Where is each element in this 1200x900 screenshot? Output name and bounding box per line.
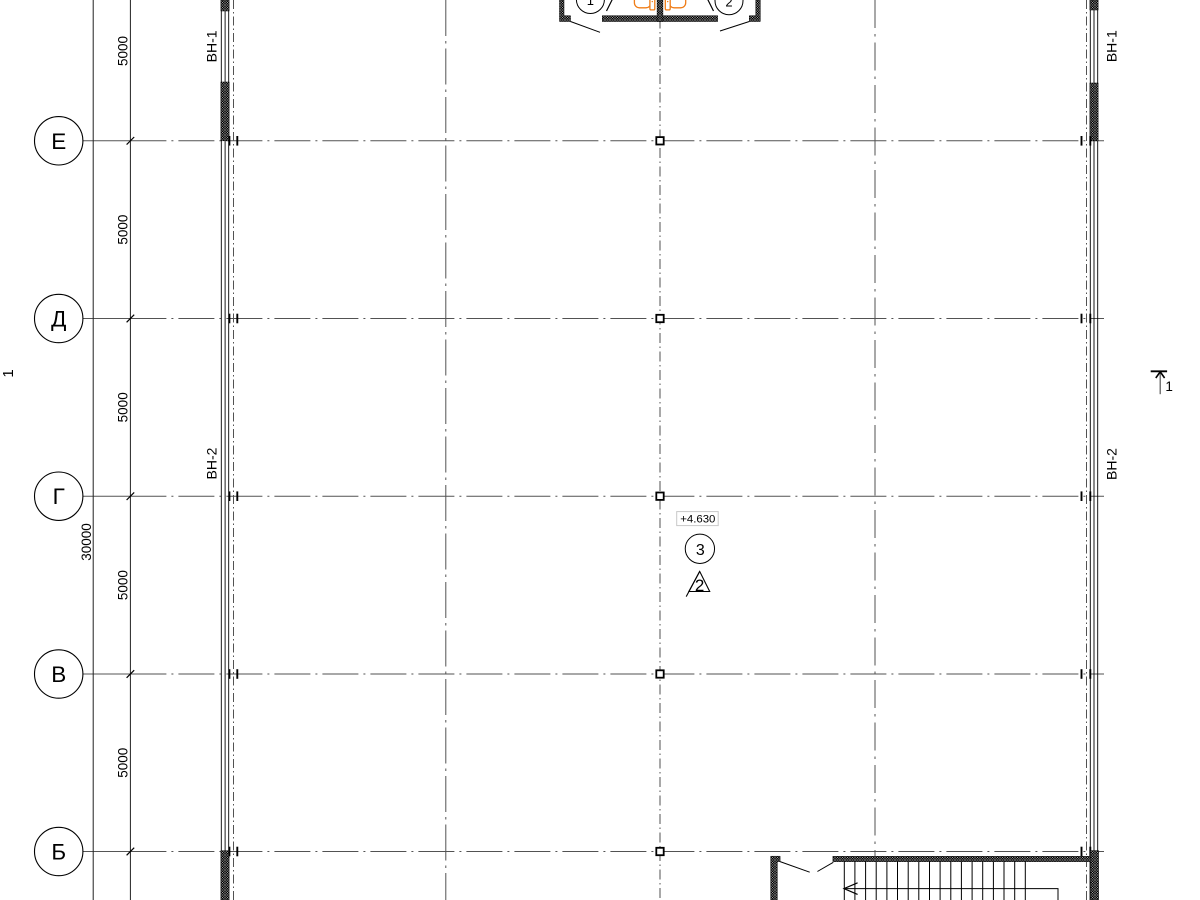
svg-text:В: В <box>51 662 66 687</box>
svg-text:3: 3 <box>696 542 705 559</box>
svg-text:ВН-1: ВН-1 <box>1103 30 1119 62</box>
svg-text:2: 2 <box>725 0 732 10</box>
svg-text:2: 2 <box>695 576 704 595</box>
svg-text:Б: Б <box>51 840 66 865</box>
svg-text:5000: 5000 <box>115 215 130 245</box>
svg-text:Е: Е <box>51 129 66 154</box>
svg-text:1: 1 <box>0 369 17 377</box>
svg-text:ВН-2: ВН-2 <box>1103 448 1119 480</box>
svg-text:1: 1 <box>1165 379 1173 394</box>
svg-text:+4.630: +4.630 <box>680 514 715 526</box>
svg-text:Г: Г <box>53 484 65 509</box>
svg-text:1: 1 <box>587 0 594 8</box>
svg-text:5000: 5000 <box>115 748 130 778</box>
svg-text:ВН-1: ВН-1 <box>204 30 220 62</box>
svg-text:30000: 30000 <box>79 523 94 561</box>
svg-text:ВН-2: ВН-2 <box>204 447 220 479</box>
svg-text:5000: 5000 <box>115 36 130 66</box>
svg-text:5000: 5000 <box>115 570 130 600</box>
svg-text:5000: 5000 <box>115 392 130 422</box>
svg-text:Д: Д <box>51 307 66 332</box>
